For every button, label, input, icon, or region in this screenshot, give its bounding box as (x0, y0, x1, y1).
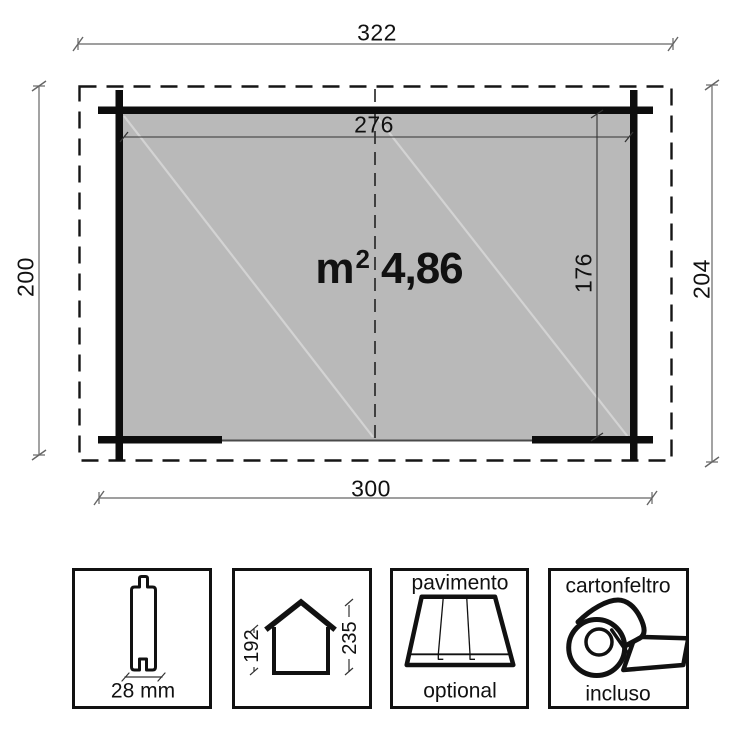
label-inner-depth: 176 (573, 253, 596, 293)
label-depth-right: 204 (691, 259, 714, 299)
wall-thickness-label: 28 mm (111, 681, 175, 702)
area-exponent: 2 (356, 244, 370, 274)
front-wall-left-log (98, 436, 222, 444)
felt-note-label: incluso (585, 684, 650, 705)
label-base-width: 300 (351, 478, 391, 501)
ridge-height-label: 235 (340, 621, 360, 654)
right-wall-log (630, 90, 638, 461)
area-unit: m (315, 244, 354, 293)
area-value-label: 4,86 (381, 247, 463, 291)
floor-title-label: pavimento (412, 573, 509, 594)
left-wall-log (116, 90, 124, 461)
eave-height-label: 192 (242, 629, 262, 662)
panel-floor-optional: pavimento optional (390, 568, 529, 709)
felt-title-label: cartonfeltro (565, 576, 670, 597)
panel-wall-thickness: 28 mm (72, 568, 212, 709)
shed-floor-plan-drawing: 322 276 300 200 204 176 m2 4,86 28 mm (0, 0, 738, 738)
floor-note-label: optional (423, 681, 497, 702)
label-inner-width: 276 (354, 114, 394, 137)
panel-elevation-heights: 192 235 (232, 568, 372, 709)
panel-felt-included: cartonfeltro incluso (548, 568, 689, 709)
area-unit-label: m2 (315, 247, 370, 291)
label-overall-width: 322 (357, 22, 397, 45)
label-depth-left: 200 (15, 257, 38, 297)
floor-slab (123, 114, 630, 440)
